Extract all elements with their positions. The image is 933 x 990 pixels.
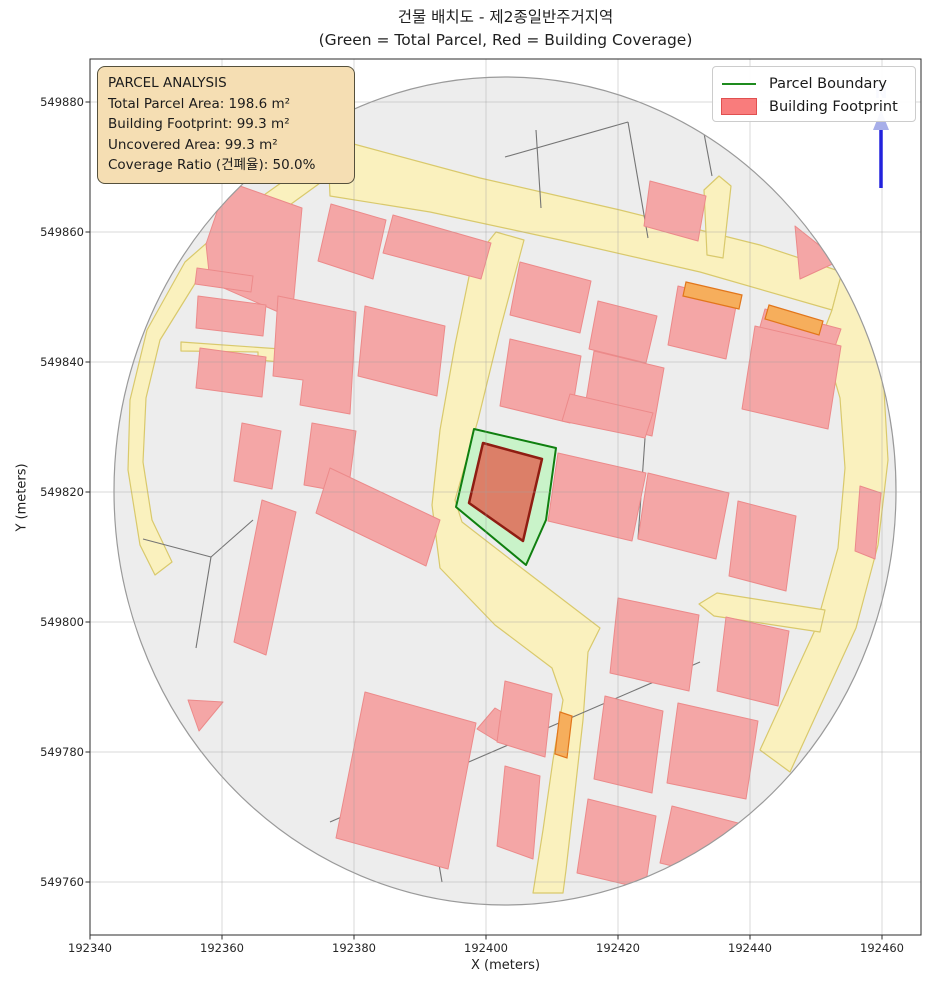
y-tick-label: 549880 (24, 95, 84, 109)
legend-item-building-footprint: Building Footprint (721, 95, 907, 118)
x-tick-label: 192400 (464, 941, 508, 955)
legend-item-parcel-boundary: Parcel Boundary (721, 72, 907, 95)
x-tick-label: 192420 (596, 941, 640, 955)
building-footprint-swatch (721, 98, 757, 115)
info-line: PARCEL ANALYSIS (108, 73, 344, 94)
x-axis-label: X (meters) (90, 958, 921, 973)
building-polygon (594, 696, 663, 793)
x-tick-label: 192380 (332, 941, 376, 955)
parcel-analysis-box: PARCEL ANALYSIS Total Parcel Area: 198.6… (97, 66, 355, 184)
y-tick-label: 549800 (24, 615, 84, 629)
info-line: Uncovered Area: 99.3 m² (108, 135, 344, 156)
building-polygon (729, 501, 796, 591)
building-polygon (497, 766, 540, 859)
y-tick-label: 549860 (24, 225, 84, 239)
legend-label: Parcel Boundary (769, 76, 887, 92)
y-tick-label: 549780 (24, 745, 84, 759)
x-tick-label: 192340 (68, 941, 112, 955)
x-tick-label: 192460 (860, 941, 904, 955)
building-polygon (717, 617, 789, 706)
y-tick-label: 549820 (24, 485, 84, 499)
info-line: Building Footprint: 99.3 m² (108, 114, 344, 135)
building-polygon (234, 423, 281, 489)
legend-label: Building Footprint (769, 99, 898, 115)
figure-canvas: 건물 배치도 - 제2종일반주거지역 (Green = Total Parcel… (0, 0, 933, 990)
y-tick-label: 549760 (24, 875, 84, 889)
building-polygon (196, 348, 266, 397)
x-tick-label: 192360 (200, 941, 244, 955)
x-tick-label: 192440 (728, 941, 772, 955)
y-tick-label: 549840 (24, 355, 84, 369)
map-area (114, 77, 896, 905)
info-line: Total Parcel Area: 198.6 m² (108, 94, 344, 115)
info-line: Coverage Ratio (건폐율): 50.0% (108, 155, 344, 176)
parcel-boundary-swatch (721, 83, 757, 85)
legend: Parcel Boundary Building Footprint (712, 66, 916, 122)
